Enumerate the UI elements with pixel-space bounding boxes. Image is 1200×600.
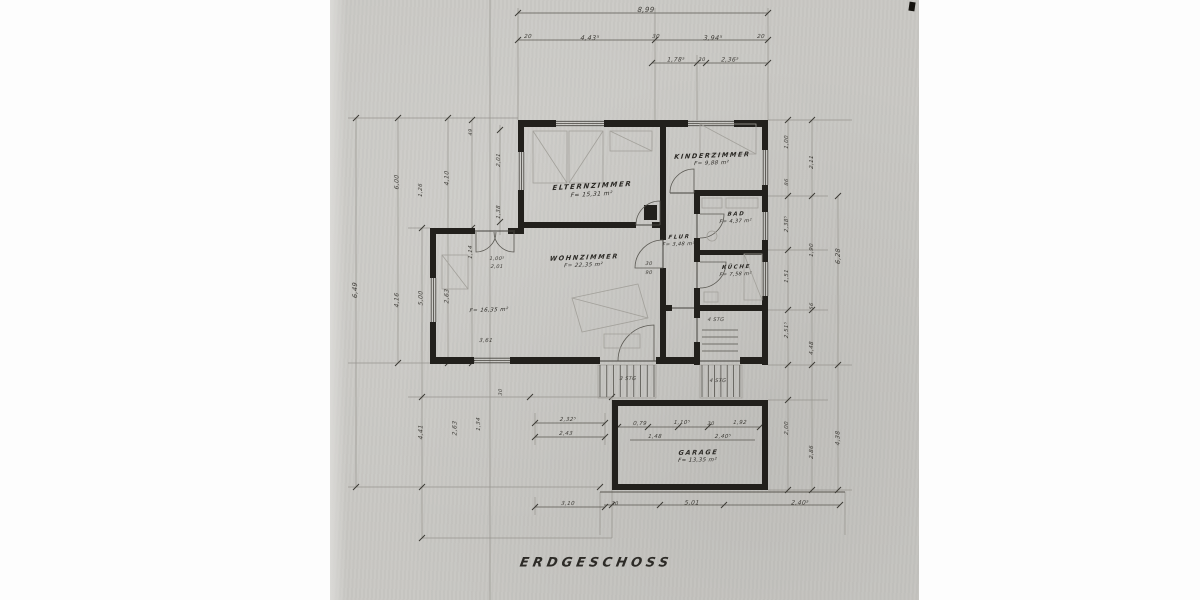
- dimension-label: 1,26: [418, 183, 424, 197]
- dimension-label: 6,00: [394, 174, 401, 190]
- dimension-label: 1,38: [496, 205, 502, 219]
- room-label-wohnzimmer-erker: F= 16,35 m²: [469, 306, 509, 314]
- dimension-label: 6,49: [351, 282, 359, 299]
- room-label-kueche: KÜCHEF= 7,58 m²: [719, 264, 753, 278]
- stair-note: 4 STG: [709, 378, 727, 384]
- dimension-label: 3,94⁵: [703, 34, 723, 42]
- room-area: F= 4,37 m²: [719, 218, 752, 225]
- dimension-label: 86: [784, 178, 790, 186]
- dimension-label: 30: [498, 388, 504, 396]
- dimension-label: 4,10: [444, 170, 451, 186]
- room-label-flur: FLURF= 3,48 m²: [662, 234, 696, 248]
- dimension-label: 5,01: [684, 500, 700, 507]
- dimension-label: 1,14: [468, 245, 474, 259]
- chimney: [644, 205, 657, 220]
- dimension-label: 1,00⁵: [489, 256, 505, 262]
- dimension-label: 2,11: [809, 155, 815, 169]
- dimension-label: 1,78⁵: [667, 57, 686, 64]
- dimension-label: 1,34: [476, 417, 482, 431]
- dimension-label: 3,10: [561, 501, 575, 507]
- dimension-label: 2,63: [452, 420, 459, 436]
- dimension-label: 2,32⁵: [559, 417, 576, 423]
- dimension-label: 30: [645, 261, 653, 267]
- dimension-label: 30: [652, 34, 660, 40]
- room-name: FLUR: [663, 234, 696, 241]
- room-label-kinderzimmer: KINDERZIMMERF= 9,88 m²: [673, 150, 751, 168]
- dimension-label: 2,36⁵: [721, 57, 740, 64]
- dimension-label: 49: [468, 128, 474, 136]
- room-area: F= 13,35 m²: [677, 457, 718, 464]
- dimension-label: 2,86: [809, 445, 815, 459]
- dimension-label: 2,40⁵: [714, 434, 731, 440]
- dimension-label: 1,10⁵: [673, 420, 690, 426]
- dimension-label: 4,43⁵: [580, 34, 600, 42]
- dimension-label: 30: [698, 57, 706, 63]
- dimension-label: 90: [645, 270, 653, 276]
- dimension-label: 1,00: [784, 135, 790, 149]
- dimension-label: 4,38: [835, 430, 842, 446]
- dimension-label: 20: [757, 34, 765, 40]
- plan-drawing: [0, 0, 1200, 600]
- dimension-label: 2,43: [559, 431, 573, 437]
- room-name: BAD: [720, 211, 753, 218]
- dimension-label: 30: [707, 421, 715, 427]
- dimension-label: 6,28: [834, 248, 842, 265]
- dimension-label: 2,00: [784, 421, 790, 435]
- floorplan-canvas: ELTERNZIMMERF= 15,31 m²KINDERZIMMERF= 9,…: [0, 0, 1200, 600]
- room-label-wohnzimmer: WOHNZIMMERF= 22,35 m²: [549, 252, 620, 269]
- dimension-label: 56: [809, 302, 815, 310]
- room-label-garage: GARAGEF= 13,35 m²: [677, 448, 719, 464]
- room-label-bad: BADF= 4,37 m²: [719, 211, 753, 225]
- dimension-label: 2,01: [490, 264, 503, 270]
- dimension-label: 5,00: [418, 290, 425, 306]
- dimension-label: 8,99: [637, 6, 655, 14]
- dimension-label: 0,79: [633, 421, 647, 427]
- room-area: F= 3,48 m²: [662, 241, 695, 248]
- dimension-label: 1,90: [809, 243, 815, 257]
- dimension-label: 2,63: [444, 288, 451, 304]
- dimension-label: 3,61: [479, 338, 493, 344]
- dimension-label: 2,38⁵: [784, 215, 790, 232]
- dimension-label: 1,51: [784, 269, 790, 283]
- dimension-label: 1,48: [648, 434, 662, 440]
- room-name: KÜCHE: [720, 264, 753, 271]
- room-name: GARAGE: [678, 448, 719, 457]
- stair-note: 4 STG: [707, 317, 725, 323]
- drawing-title: ERDGESCHOSS: [519, 556, 674, 571]
- dimension-label: 1,92: [733, 420, 747, 426]
- dimension-label: 2,40⁵: [791, 500, 810, 507]
- door-lines: [475, 193, 740, 361]
- dimension-label: 4,48: [809, 341, 815, 355]
- dimension-label: 2,51⁵: [784, 321, 790, 338]
- dimension-label: 20: [524, 34, 532, 40]
- stair-note: 3 STG: [619, 376, 637, 382]
- dimension-label: 4,16: [394, 292, 401, 308]
- room-area: F= 7,58 m²: [719, 271, 752, 278]
- dimension-label: 4,41: [418, 424, 425, 440]
- dimension-ticks: [353, 10, 843, 541]
- dimension-label: 2,01: [496, 153, 502, 167]
- dimension-label: 30: [611, 501, 619, 507]
